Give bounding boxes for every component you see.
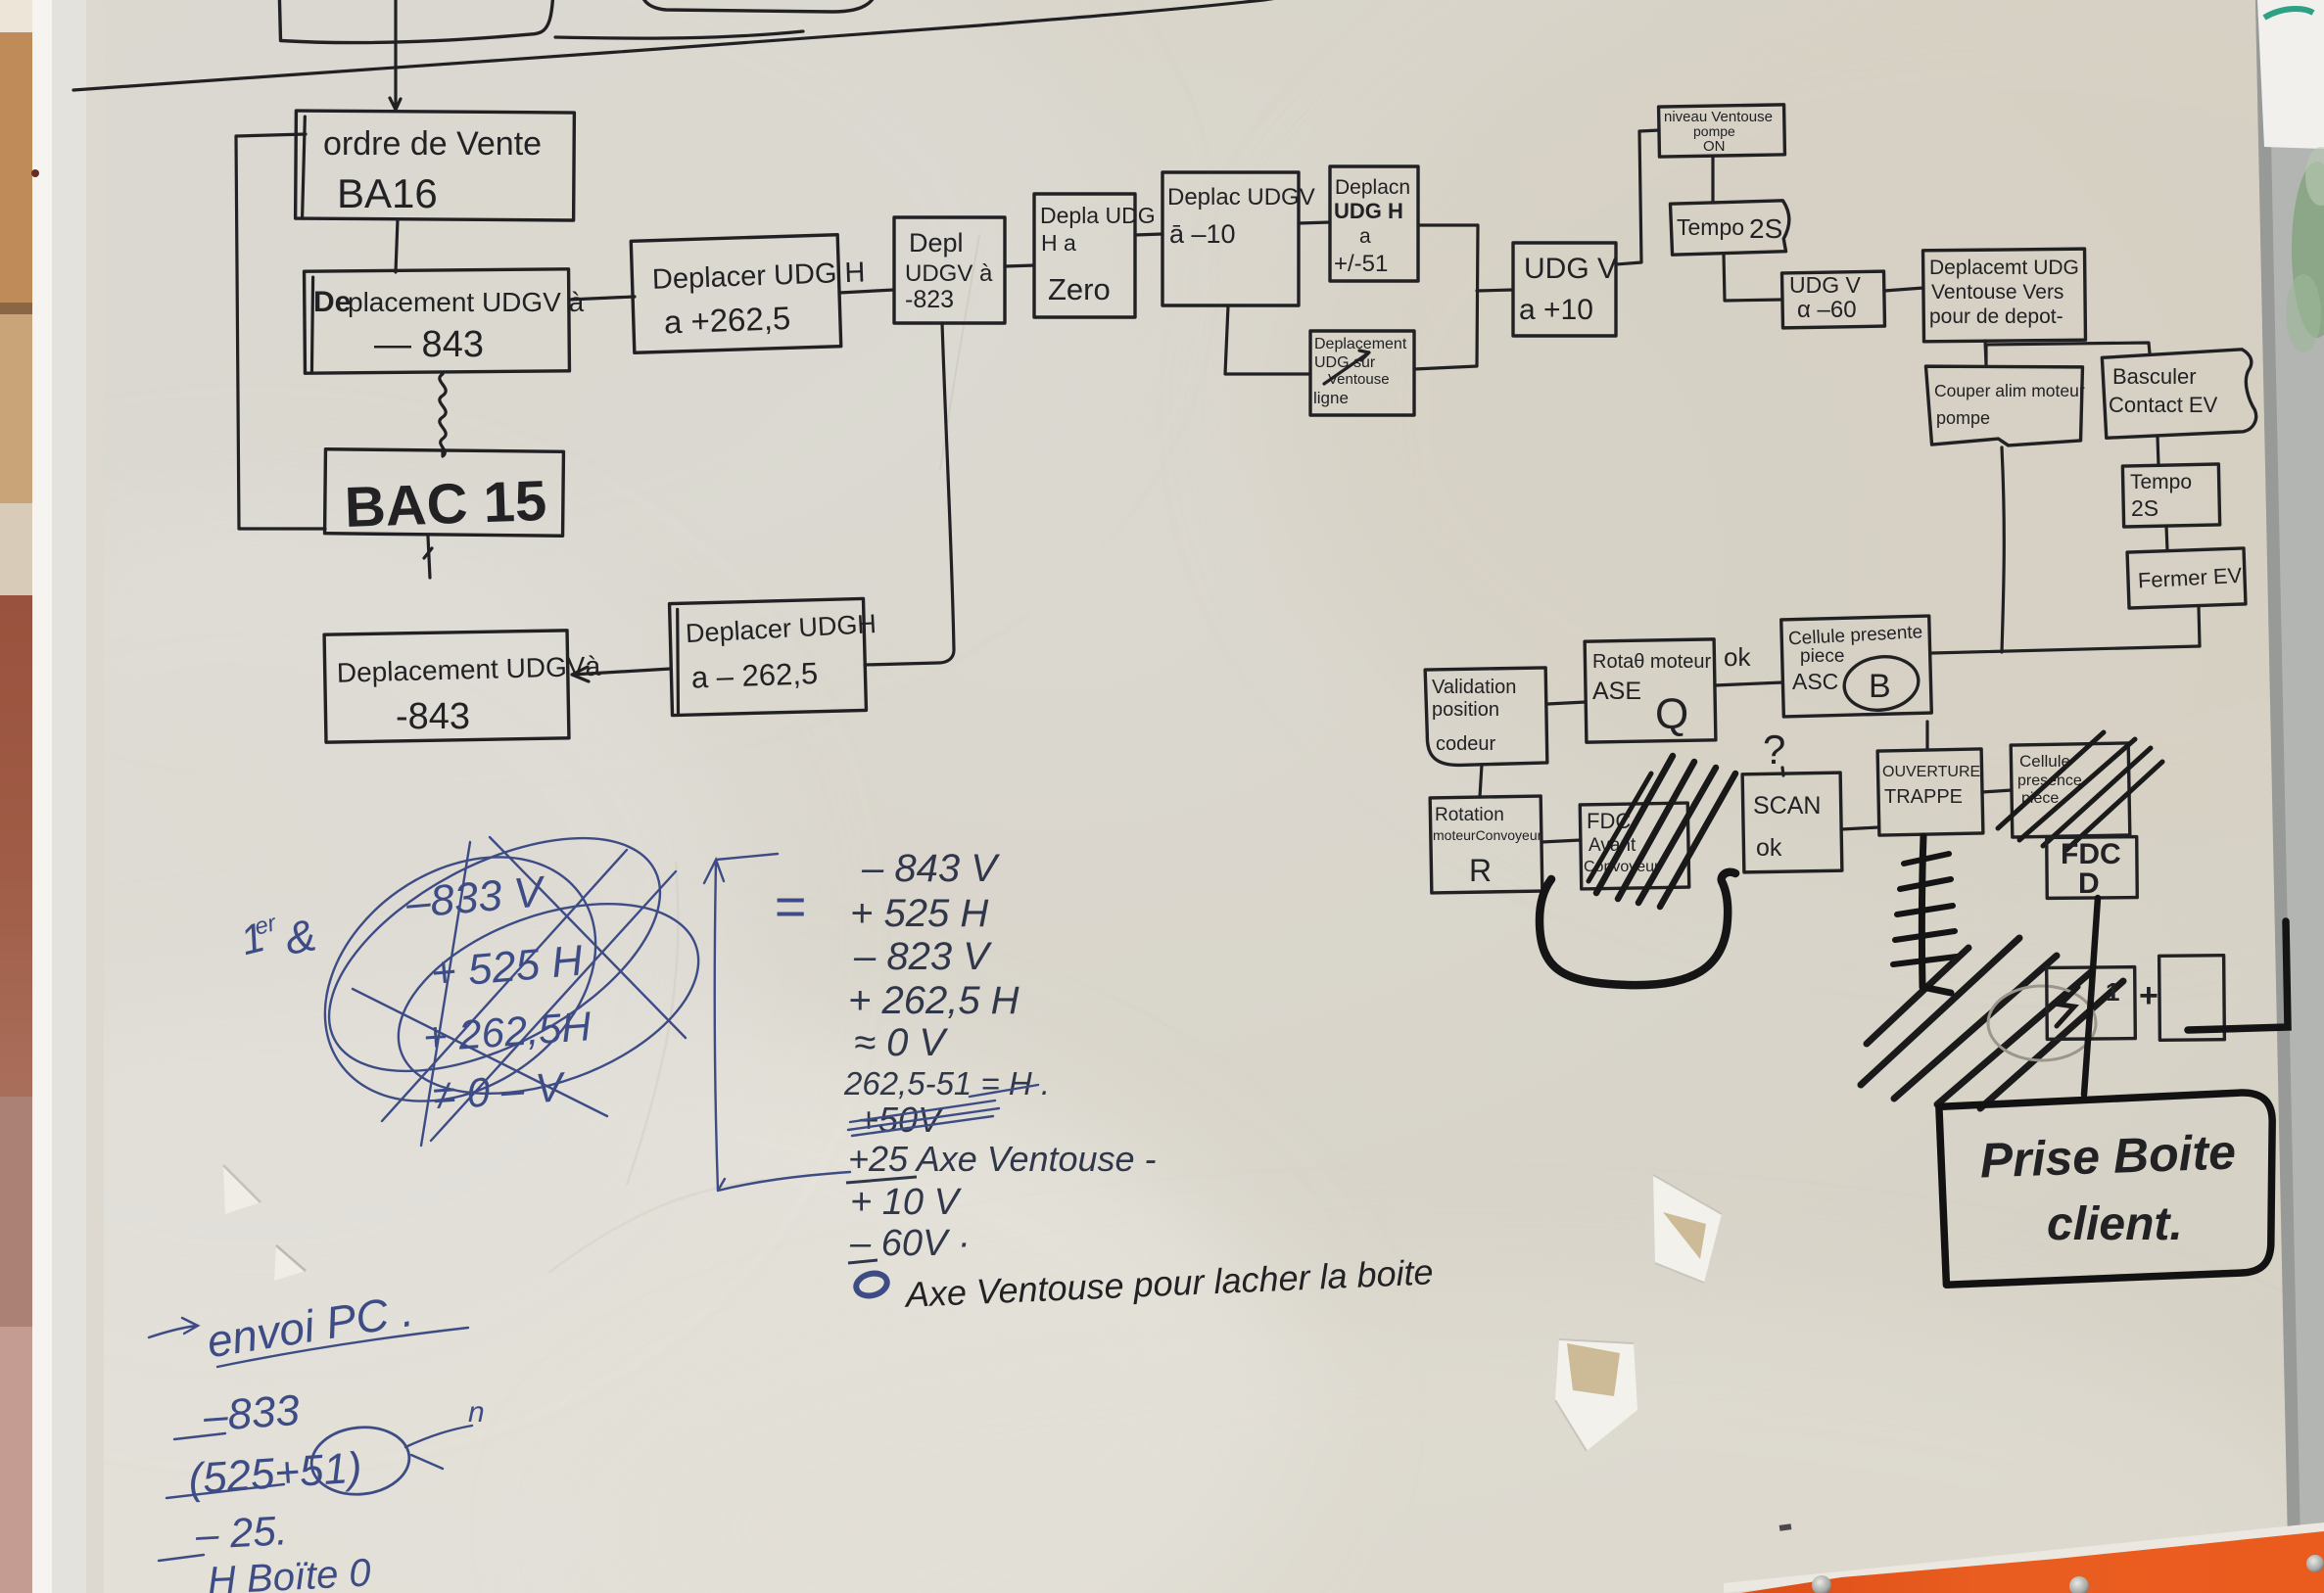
- svg-text:262,5-51 = H .: 262,5-51 = H .: [843, 1065, 1050, 1101]
- svg-text:n: n: [468, 1396, 485, 1429]
- svg-text:≈ 0 V: ≈ 0 V: [854, 1021, 948, 1064]
- svg-text:– 843 V: – 843 V: [861, 847, 1000, 890]
- svg-text:H Boïte 0: H Boïte 0: [207, 1551, 372, 1593]
- svg-text:=: =: [774, 875, 806, 937]
- svg-text:+ 262,5H: + 262,5H: [421, 1003, 593, 1060]
- svg-text:&: &: [281, 909, 319, 964]
- svg-text:+ 525 H: + 525 H: [850, 892, 988, 935]
- svg-text:envoi PC .: envoi PC .: [204, 1285, 417, 1368]
- svg-text:+ 262,5 H: + 262,5 H: [848, 979, 1020, 1022]
- svg-text:Axe Ventouse pour lacher la bo: Axe Ventouse pour lacher la boite: [903, 1251, 1434, 1315]
- svg-text:≠ 0 – V: ≠ 0 – V: [431, 1063, 568, 1118]
- svg-text:(525+51): (525+51): [187, 1443, 363, 1503]
- svg-text:– 823 V: – 823 V: [853, 935, 992, 978]
- svg-text:– 60V ·: – 60V ·: [849, 1223, 971, 1264]
- svg-text:+25 Axe Ventouse -: +25 Axe Ventouse -: [848, 1139, 1157, 1179]
- svg-text:–833: –833: [201, 1386, 302, 1441]
- svg-text:– 25.: – 25.: [194, 1507, 289, 1558]
- svg-text:+ 10 V: + 10 V: [850, 1182, 963, 1223]
